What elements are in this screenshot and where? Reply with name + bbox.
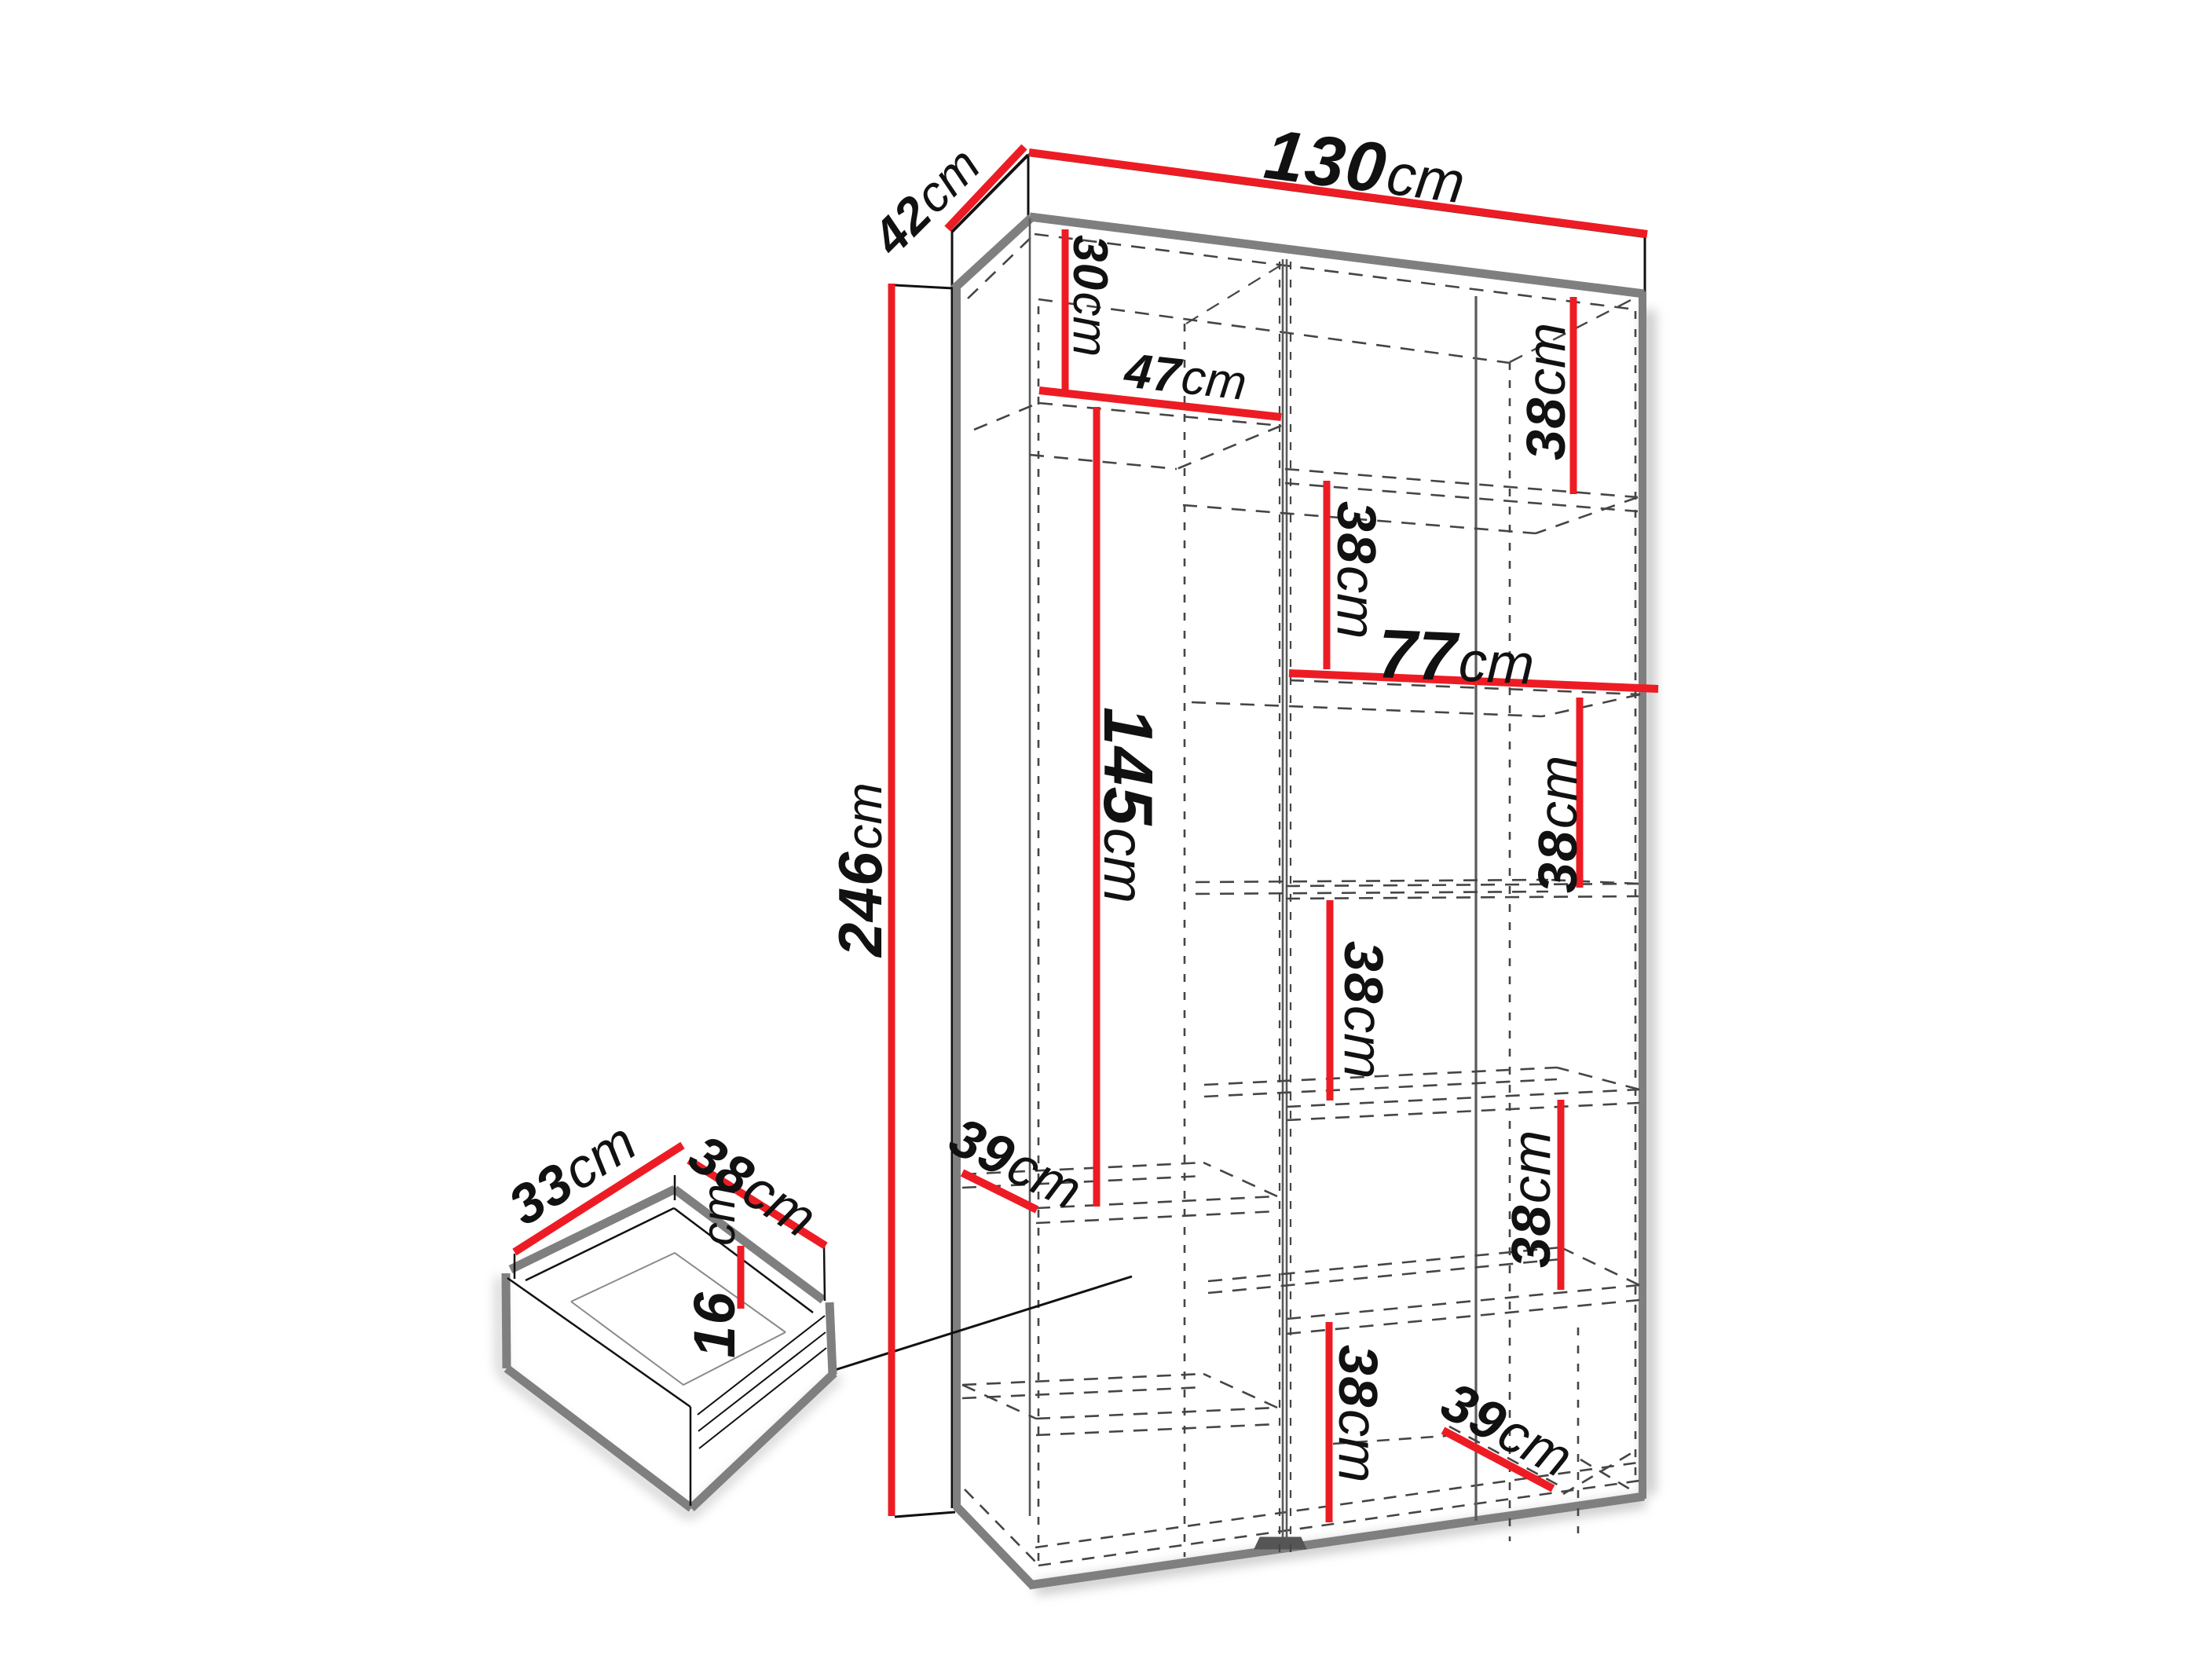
- svg-text:38cm: 38cm: [1500, 1130, 1562, 1268]
- svg-text:38cm: 38cm: [1527, 756, 1588, 893]
- svg-text:38cm: 38cm: [1328, 1345, 1389, 1482]
- svg-text:38cm: 38cm: [1326, 501, 1387, 639]
- svg-text:30cm: 30cm: [1063, 235, 1117, 357]
- svg-text:38cm: 38cm: [1515, 323, 1577, 460]
- svg-text:246cm: 246cm: [826, 782, 895, 958]
- svg-text:38cm: 38cm: [1333, 941, 1394, 1079]
